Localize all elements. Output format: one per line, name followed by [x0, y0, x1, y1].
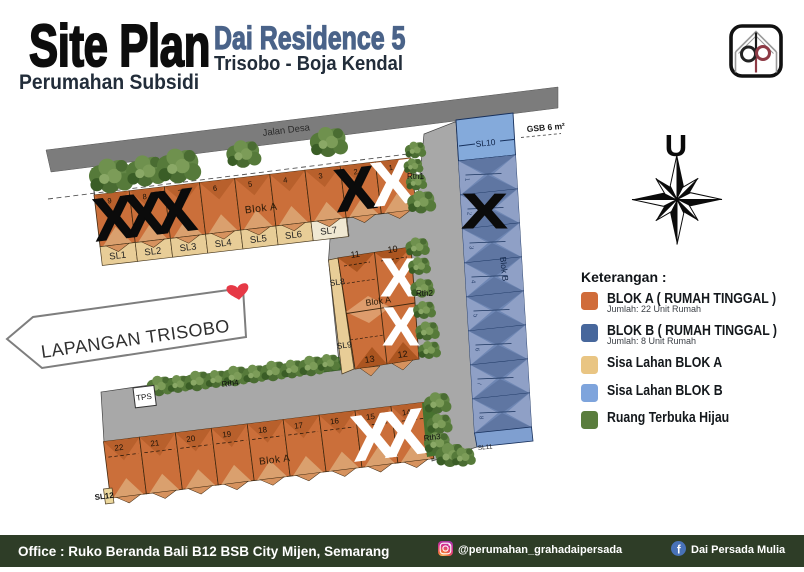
svg-text:SL8: SL8 — [329, 276, 346, 288]
svg-text:Dai Persada Mulia: Dai Persada Mulia — [691, 544, 786, 556]
svg-text:Jumlah: 22 Unit Rumah: Jumlah: 22 Unit Rumah — [607, 304, 701, 314]
svg-text:X: X — [462, 184, 507, 239]
svg-text:Ruang Terbuka Hijau: Ruang Terbuka Hijau — [607, 409, 729, 425]
svg-text:SL9: SL9 — [336, 339, 353, 351]
svg-text:X: X — [378, 395, 429, 472]
svg-text:11: 11 — [350, 249, 361, 260]
svg-text:SL10: SL10 — [475, 137, 496, 149]
svg-text:19: 19 — [222, 429, 232, 439]
svg-text:Trisobo - Boja Kendal: Trisobo - Boja Kendal — [214, 53, 403, 75]
svg-text:Jumlah: 8 Unit Rumah: Jumlah: 8 Unit Rumah — [607, 336, 696, 346]
svg-text:Sisa Lahan BLOK B: Sisa Lahan BLOK B — [607, 382, 723, 398]
svg-text:18: 18 — [258, 425, 268, 435]
svg-text:Sisa Lahan BLOK A: Sisa Lahan BLOK A — [607, 354, 722, 370]
svg-text:Rth2: Rth2 — [416, 289, 433, 298]
svg-text:22: 22 — [114, 443, 124, 453]
svg-text:SL7: SL7 — [320, 225, 338, 238]
svg-text:Keterangan :: Keterangan : — [581, 269, 667, 285]
svg-text:X: X — [383, 297, 419, 357]
svg-text:13: 13 — [364, 354, 375, 365]
svg-text:f: f — [677, 544, 681, 556]
svg-text:21: 21 — [150, 438, 160, 448]
svg-text:17: 17 — [294, 421, 304, 431]
svg-text:X: X — [152, 176, 200, 247]
svg-text:SL6: SL6 — [285, 229, 303, 242]
svg-text:@perumahan_grahadaipersada: @perumahan_grahadaipersada — [458, 544, 623, 556]
svg-text:Perumahan Subsidi: Perumahan Subsidi — [19, 71, 199, 94]
svg-text:Rth1: Rth1 — [407, 172, 424, 181]
svg-text:SL4: SL4 — [214, 237, 232, 250]
svg-text:Dai Residence 5: Dai Residence 5 — [214, 21, 405, 57]
svg-text:SL5: SL5 — [249, 233, 267, 246]
svg-text:16: 16 — [330, 416, 340, 426]
svg-text:20: 20 — [186, 434, 196, 444]
svg-text:Office : Ruko Beranda Bali B12: Office : Ruko Beranda Bali B12 BSB City … — [18, 544, 389, 559]
svg-text:TPS: TPS — [136, 392, 153, 403]
svg-text:Site Plan: Site Plan — [29, 13, 210, 79]
